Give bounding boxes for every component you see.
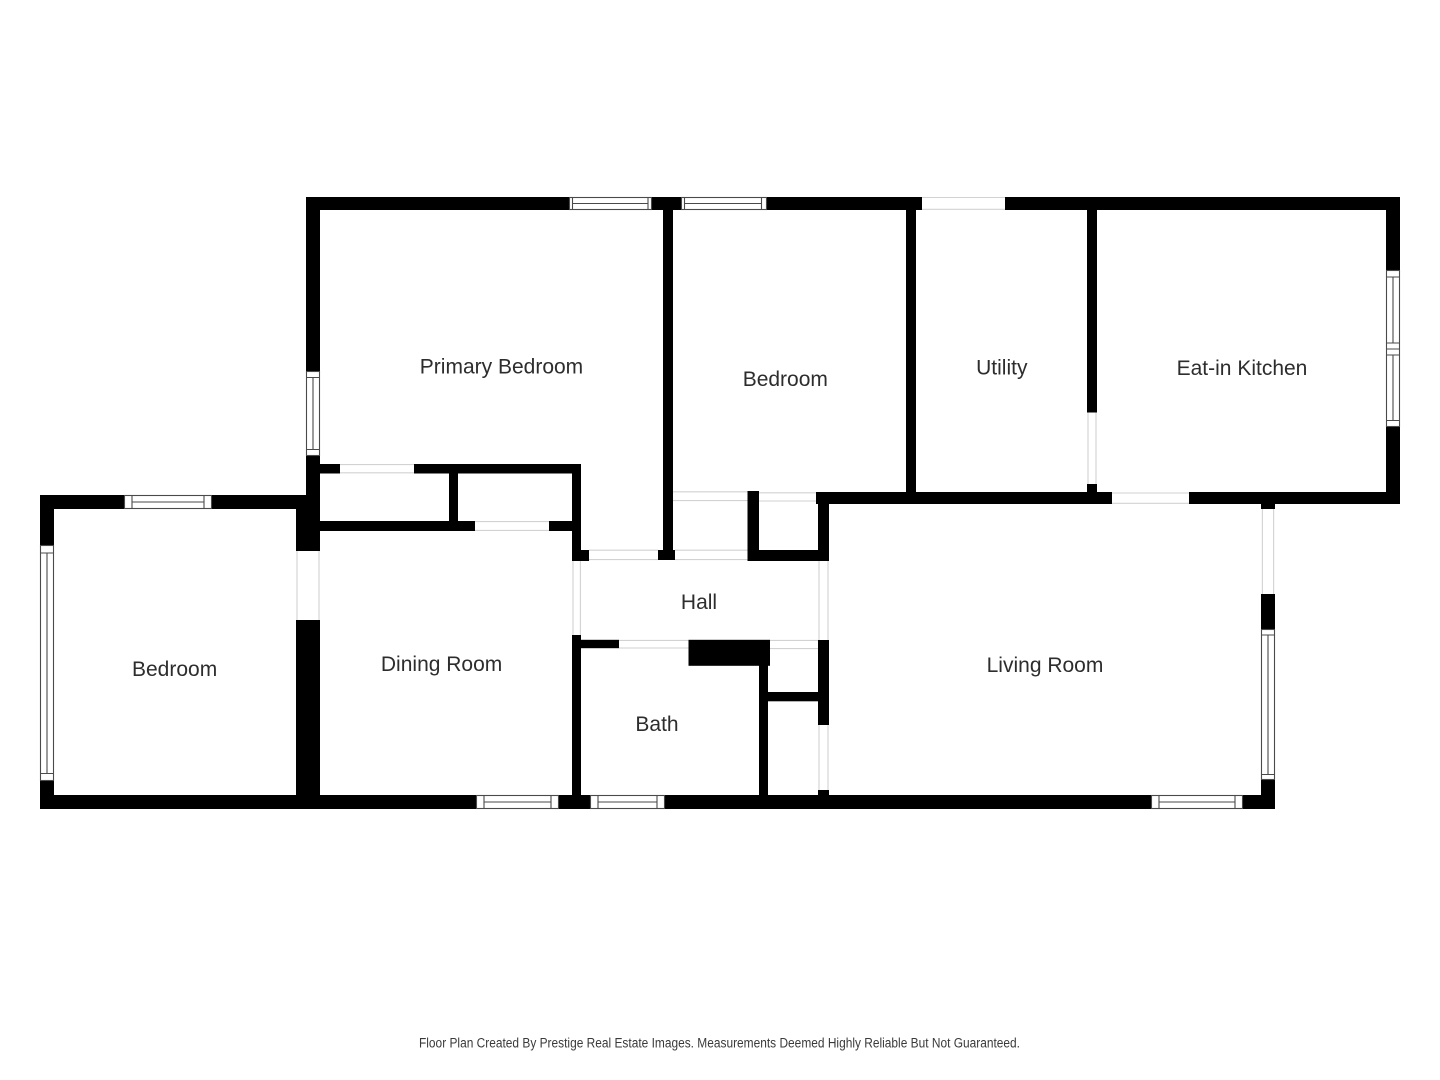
svg-text:Living Room: Living Room bbox=[987, 654, 1104, 677]
svg-text:Bath: Bath bbox=[635, 713, 678, 736]
svg-text:Floor Plan Created By Prestige: Floor Plan Created By Prestige Real Esta… bbox=[419, 1036, 1020, 1051]
svg-text:Hall: Hall bbox=[681, 591, 717, 614]
svg-text:Bedroom: Bedroom bbox=[743, 368, 828, 391]
svg-text:Utility: Utility bbox=[976, 357, 1028, 380]
svg-text:Primary Bedroom: Primary Bedroom bbox=[420, 356, 583, 379]
svg-text:Bedroom: Bedroom bbox=[132, 658, 217, 681]
svg-text:Eat-in Kitchen: Eat-in Kitchen bbox=[1177, 357, 1308, 380]
svg-text:Dining Room: Dining Room bbox=[381, 653, 502, 676]
